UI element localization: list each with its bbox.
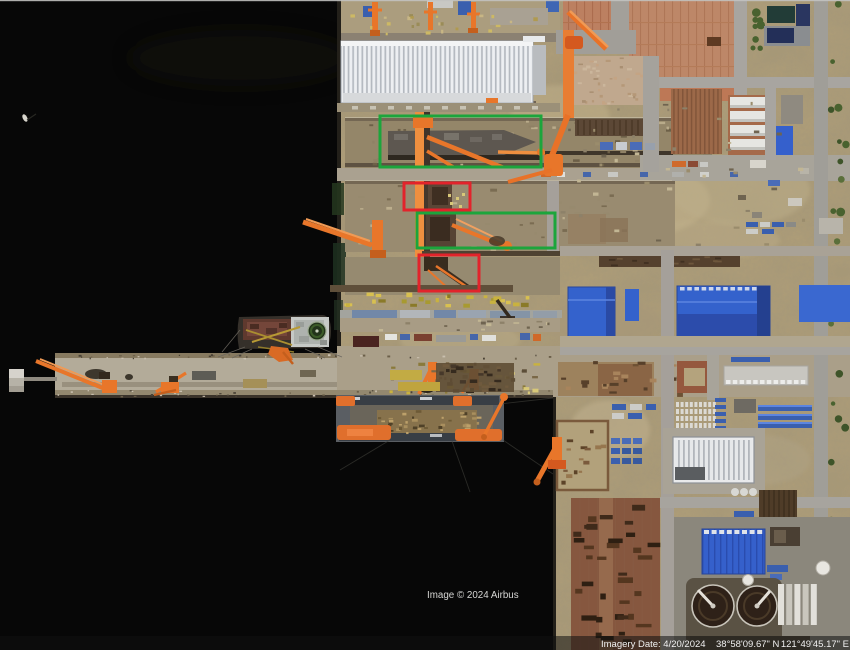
svg-text:121°49'45.17" E: 121°49'45.17" E [781, 639, 849, 650]
svg-text:Imagery Date: 4/20/2024: Imagery Date: 4/20/2024 [601, 639, 706, 650]
svg-text:Image © 2024 Airbus: Image © 2024 Airbus [427, 590, 519, 601]
svg-text:38°58'09.67" N: 38°58'09.67" N [716, 639, 780, 650]
